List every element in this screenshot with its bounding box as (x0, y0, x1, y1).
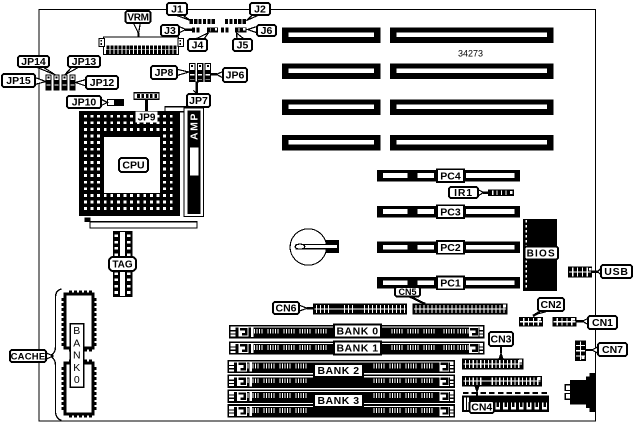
svg-text:BANK 2: BANK 2 (317, 365, 359, 377)
svg-text:JP13: JP13 (72, 56, 97, 68)
svg-text:IR1: IR1 (454, 187, 473, 199)
svg-text:K: K (73, 362, 80, 374)
svg-text:J6: J6 (261, 25, 273, 37)
svg-text:CPU: CPU (122, 160, 144, 172)
svg-text:JP15: JP15 (6, 75, 31, 87)
svg-text:CN3: CN3 (490, 334, 511, 346)
svg-text:J2: J2 (254, 4, 266, 16)
svg-text:BANK 3: BANK 3 (317, 395, 359, 407)
svg-text:CN4: CN4 (471, 402, 492, 414)
svg-text:JP12: JP12 (90, 77, 115, 89)
svg-text:J3: J3 (164, 25, 176, 37)
svg-text:JP6: JP6 (226, 70, 245, 82)
svg-text:PC2: PC2 (440, 242, 461, 254)
svg-text:A: A (73, 337, 80, 349)
svg-text:CN5: CN5 (398, 287, 416, 297)
svg-text:BANK 1: BANK 1 (336, 343, 378, 355)
svg-text:BIOS: BIOS (527, 249, 556, 260)
svg-text:B: B (73, 325, 80, 337)
svg-text:TAG: TAG (112, 260, 133, 271)
svg-text:BANK 0: BANK 0 (336, 326, 378, 338)
svg-text:CN7: CN7 (602, 344, 623, 356)
svg-text:34273: 34273 (458, 49, 483, 59)
svg-text:JP14: JP14 (21, 56, 46, 68)
svg-text:CN6: CN6 (275, 303, 296, 315)
svg-text:PC1: PC1 (440, 277, 461, 289)
svg-text:JP8: JP8 (155, 67, 174, 79)
svg-text:CN1: CN1 (592, 317, 613, 329)
svg-text:VRM: VRM (127, 13, 148, 24)
svg-text:CN2: CN2 (540, 299, 561, 311)
svg-text:JP7: JP7 (189, 95, 208, 107)
svg-text:PC4: PC4 (440, 170, 461, 182)
svg-text:JP9: JP9 (138, 112, 156, 123)
svg-text:CACHE: CACHE (11, 351, 46, 362)
svg-text:0: 0 (74, 374, 80, 386)
svg-text:JP10: JP10 (72, 97, 97, 109)
svg-text:AMP: AMP (189, 112, 201, 140)
svg-text:USB: USB (604, 266, 629, 278)
svg-text:PC3: PC3 (440, 206, 461, 218)
svg-text:N: N (73, 350, 81, 362)
svg-text:J4: J4 (192, 40, 204, 52)
svg-text:J1: J1 (171, 4, 183, 16)
svg-text:J5: J5 (237, 40, 249, 52)
